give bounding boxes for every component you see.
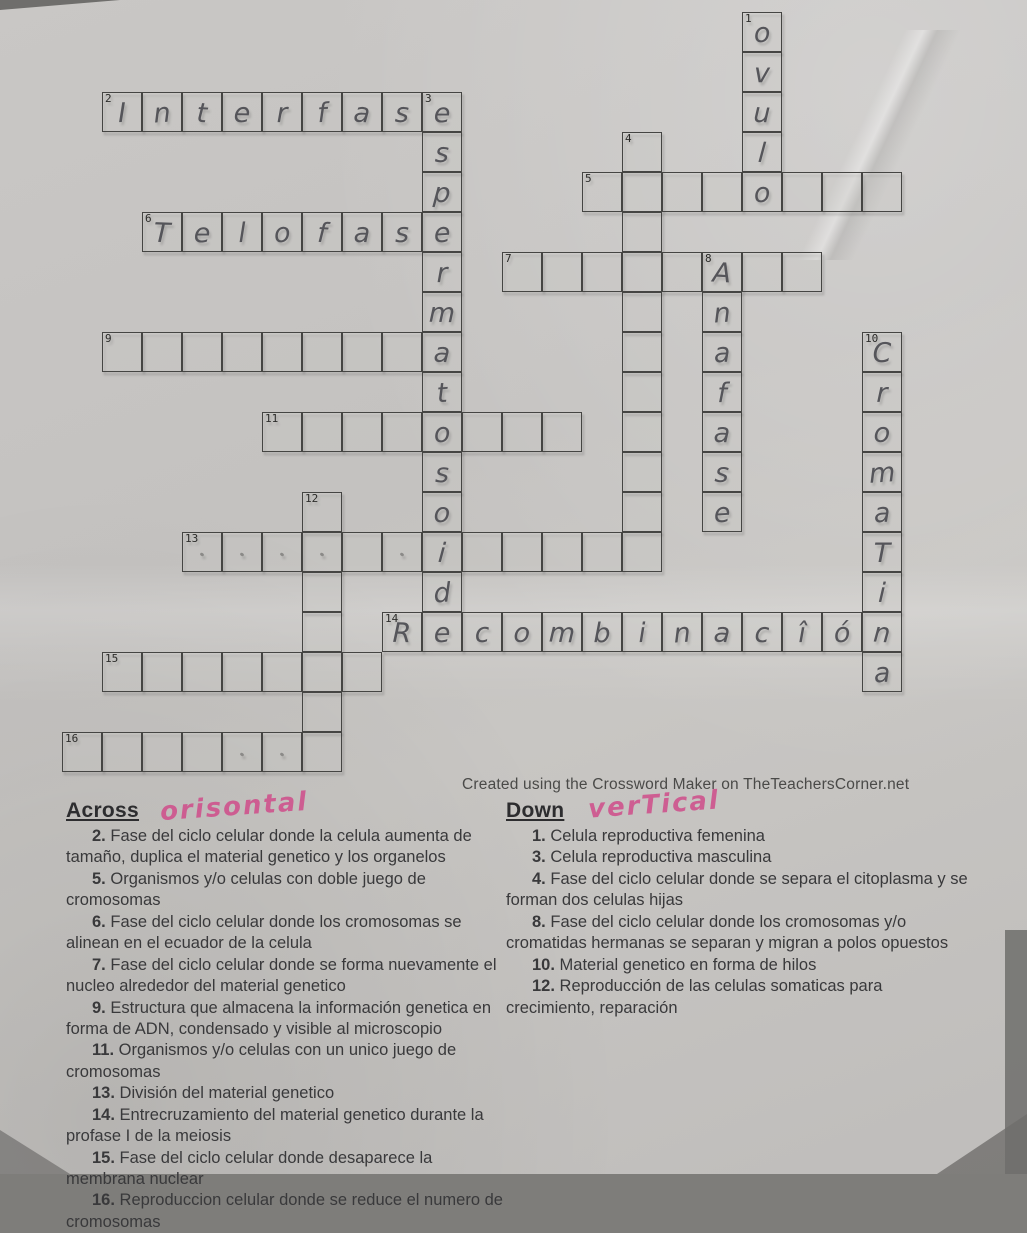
grid-cell: 16 xyxy=(62,732,102,772)
handwritten-letter: o xyxy=(742,12,781,51)
clue-item: 6. Fase del ciclo celular donde los crom… xyxy=(66,912,504,955)
handwritten-letter: t xyxy=(182,92,222,132)
grid-cell xyxy=(582,252,622,292)
grid-cell: n xyxy=(702,292,742,332)
grid-cell: o xyxy=(502,612,542,652)
crossword-grid: 2Interfas3e5o6Telofase78A9a11o13i14Recom… xyxy=(62,12,902,772)
clue-number: 16 xyxy=(65,733,78,745)
grid-cell xyxy=(142,332,182,372)
handwritten-letter: e xyxy=(223,93,262,132)
clue-item: 10. Material genetico en forma de hilos xyxy=(506,955,968,976)
grid-cell: o xyxy=(422,412,462,452)
grid-cell: o xyxy=(742,172,782,212)
handwritten-letter: c xyxy=(743,613,782,652)
grid-cell: r xyxy=(862,372,902,412)
clue-item-number: 5. xyxy=(92,870,110,888)
grid-cell: u xyxy=(742,92,782,132)
handwritten-letter: m xyxy=(862,452,903,493)
grid-cell: a xyxy=(342,92,382,132)
handwritten-letter: n xyxy=(862,612,903,653)
clue-item-number: 16. xyxy=(92,1191,120,1209)
clue-item-number: 1. xyxy=(532,827,550,845)
handwritten-letter: d xyxy=(422,572,462,612)
handwritten-letter: u xyxy=(742,92,781,131)
clue-number: 11 xyxy=(265,413,278,425)
handwritten-letter: a xyxy=(422,332,462,372)
grid-cell xyxy=(302,612,342,652)
grid-cell xyxy=(622,412,662,452)
grid-cell xyxy=(142,732,182,772)
handwritten-letter: i xyxy=(862,572,901,611)
grid-cell xyxy=(782,252,822,292)
grid-cell xyxy=(462,412,502,452)
handwritten-letter: s xyxy=(382,92,421,131)
handwritten-letter: o xyxy=(262,212,303,253)
grid-cell xyxy=(622,292,662,332)
clue-item: 12. Reproducción de las celulas somatica… xyxy=(506,976,968,1019)
grid-cell xyxy=(222,732,262,772)
clue-item-number: 7. xyxy=(92,956,110,974)
clue-item-number: 11. xyxy=(92,1041,119,1059)
grid-cell xyxy=(782,172,822,212)
grid-cell: 12 xyxy=(302,492,342,532)
clue-item-number: 10. xyxy=(532,956,560,974)
handwritten-letter: n xyxy=(142,92,183,133)
grid-cell xyxy=(342,532,382,572)
grid-cell xyxy=(862,172,902,212)
handwritten-letter: e xyxy=(702,492,742,532)
grid-cell xyxy=(382,332,422,372)
grid-cell xyxy=(542,532,582,572)
handwritten-letter: r xyxy=(863,373,902,412)
grid-cell xyxy=(182,332,222,372)
grid-cell xyxy=(342,332,382,372)
handwritten-letter: i xyxy=(422,532,463,573)
grid-cell: a xyxy=(862,492,902,532)
grid-cell: e xyxy=(182,212,222,252)
stray-pencil-mark xyxy=(400,552,405,557)
grid-cell xyxy=(542,252,582,292)
handwritten-letter: m xyxy=(542,612,581,651)
clue-item: 9. Estructura que almacena la informació… xyxy=(66,998,504,1041)
grid-cell xyxy=(302,412,342,452)
clue-item-number: 2. xyxy=(92,827,110,845)
grid-cell: a xyxy=(862,652,902,692)
clue-item-number: 12. xyxy=(532,977,560,995)
down-clue-list: 1. Celula reproductiva femenina3. Celula… xyxy=(506,826,968,1019)
clue-item: 3. Celula reproductiva masculina xyxy=(506,847,968,868)
clue-item: 8. Fase del ciclo celular donde los crom… xyxy=(506,912,968,955)
clue-number: 4 xyxy=(625,133,632,145)
handwritten-letter: T xyxy=(863,533,901,571)
grid-cell: ó xyxy=(822,612,862,652)
clue-item: 13. División del material genetico xyxy=(66,1083,504,1104)
grid-cell: a xyxy=(702,612,742,652)
handwritten-letter: e xyxy=(423,613,462,652)
handwritten-letter: l xyxy=(222,212,261,251)
grid-cell: s xyxy=(422,132,462,172)
clue-item-number: 9. xyxy=(92,999,110,1017)
grid-cell: 11 xyxy=(262,412,302,452)
handwritten-letter: o xyxy=(422,492,461,531)
stray-pencil-mark xyxy=(280,752,285,757)
clue-number: 15 xyxy=(105,653,118,665)
handwritten-letter: î xyxy=(783,613,822,652)
handwritten-letter: a xyxy=(342,92,383,133)
handwritten-letter: i xyxy=(622,612,661,651)
grid-cell xyxy=(182,732,222,772)
grid-cell: t xyxy=(422,372,462,412)
clue-item-number: 3. xyxy=(532,848,550,866)
grid-cell xyxy=(622,452,662,492)
grid-cell xyxy=(382,412,422,452)
grid-cell: s xyxy=(382,212,422,252)
across-clue-list: 2. Fase del ciclo celular donde la celul… xyxy=(66,826,504,1233)
grid-cell: 7 xyxy=(502,252,542,292)
grid-cell xyxy=(742,252,782,292)
grid-cell: i xyxy=(862,572,902,612)
grid-cell: i xyxy=(422,532,462,572)
grid-cell: m xyxy=(422,292,462,332)
grid-cell: 2I xyxy=(102,92,142,132)
grid-cell xyxy=(502,532,542,572)
handwritten-letter: C xyxy=(863,333,902,372)
grid-cell xyxy=(302,332,342,372)
handwritten-letter: f xyxy=(302,92,342,132)
grid-cell xyxy=(542,412,582,452)
stray-pencil-mark xyxy=(240,552,245,557)
handwritten-letter: e xyxy=(422,212,462,252)
grid-cell xyxy=(702,172,742,212)
grid-cell: m xyxy=(862,452,902,492)
handwritten-letter: ó xyxy=(822,612,862,652)
handwritten-letter: e xyxy=(423,93,461,131)
grid-cell xyxy=(622,492,662,532)
grid-cell xyxy=(222,532,262,572)
handwritten-letter: o xyxy=(742,172,782,212)
grid-cell xyxy=(622,532,662,572)
grid-cell xyxy=(622,372,662,412)
grid-cell: i xyxy=(622,612,662,652)
clue-item-number: 13. xyxy=(92,1084,120,1102)
grid-cell: T xyxy=(862,532,902,572)
handwritten-letter: a xyxy=(343,213,382,252)
clue-item: 5. Organismos y/o celulas con doble jueg… xyxy=(66,869,504,912)
clue-number: 12 xyxy=(305,493,318,505)
grid-cell: î xyxy=(782,612,822,652)
clue-number: 5 xyxy=(585,173,592,185)
clue-item: 14. Entrecruzamiento del material geneti… xyxy=(66,1105,504,1148)
grid-cell: m xyxy=(542,612,582,652)
grid-cell: n xyxy=(142,92,182,132)
clue-item-number: 15. xyxy=(92,1149,120,1167)
grid-cell: e xyxy=(222,92,262,132)
handwritten-letter: n xyxy=(662,612,703,653)
grid-cell: c xyxy=(462,612,502,652)
grid-cell xyxy=(302,692,342,732)
grid-cell: e xyxy=(422,212,462,252)
grid-cell xyxy=(302,532,342,572)
grid-cell xyxy=(582,532,622,572)
grid-cell: l xyxy=(742,132,782,172)
grid-cell: 8A xyxy=(702,252,742,292)
clue-item: 7. Fase del ciclo celular donde se forma… xyxy=(66,955,504,998)
grid-cell xyxy=(262,332,302,372)
grid-cell xyxy=(102,732,142,772)
grid-cell xyxy=(262,732,302,772)
grid-cell xyxy=(222,332,262,372)
grid-cell: b xyxy=(582,612,622,652)
grid-cell xyxy=(622,252,662,292)
grid-cell: p xyxy=(422,172,462,212)
handwritten-letter: o xyxy=(422,412,461,451)
handwritten-letter: a xyxy=(702,612,742,652)
clue-item-number: 6. xyxy=(92,913,110,931)
grid-cell: d xyxy=(422,572,462,612)
grid-cell: e xyxy=(702,492,742,532)
handwritten-letter: R xyxy=(383,613,422,652)
clue-item: 11. Organismos y/o celulas con un unico … xyxy=(66,1040,504,1083)
handwritten-letter: r xyxy=(263,93,302,132)
grid-cell xyxy=(302,572,342,612)
grid-cell: n xyxy=(862,612,902,652)
clue-item: 15. Fase del ciclo celular donde desapar… xyxy=(66,1148,504,1191)
grid-cell: f xyxy=(302,92,342,132)
down-heading: Down xyxy=(506,799,564,823)
handwritten-letter: c xyxy=(462,612,502,652)
grid-cell: 5 xyxy=(582,172,622,212)
grid-cell: o xyxy=(862,412,902,452)
clue-item: 2. Fase del ciclo celular donde la celul… xyxy=(66,826,504,869)
handwritten-letter: e xyxy=(183,213,221,251)
stray-pencil-mark xyxy=(280,552,285,557)
grid-cell: a xyxy=(702,412,742,452)
handwritten-letter: a xyxy=(702,412,741,451)
grid-cell xyxy=(182,652,222,692)
across-heading: Across xyxy=(66,799,139,823)
grid-cell: r xyxy=(422,252,462,292)
grid-cell: 13 xyxy=(182,532,222,572)
clue-item: 16. Reproduccion celular donde se reduce… xyxy=(66,1190,504,1233)
grid-cell: 14R xyxy=(382,612,422,652)
grid-cell: e xyxy=(422,612,462,652)
handwritten-letter: t xyxy=(422,372,463,413)
grid-cell xyxy=(822,172,862,212)
handwritten-letter: s xyxy=(422,132,461,171)
grid-cell xyxy=(302,652,342,692)
grid-cell: c xyxy=(742,612,782,652)
handwritten-letter: s xyxy=(383,213,422,252)
grid-cell: a xyxy=(702,332,742,372)
grid-cell xyxy=(662,252,702,292)
grid-cell xyxy=(222,652,262,692)
grid-cell: o xyxy=(422,492,462,532)
handwritten-letter: A xyxy=(702,252,742,292)
clue-item: 1. Celula reproductiva femenina xyxy=(506,826,968,847)
grid-cell: 10C xyxy=(862,332,902,372)
handwritten-letter: b xyxy=(583,613,621,651)
clue-item-number: 4. xyxy=(532,870,550,888)
handwritten-letter: a xyxy=(862,652,902,692)
handwritten-letter: n xyxy=(702,292,743,333)
handwritten-letter: a xyxy=(702,332,741,371)
grid-cell xyxy=(342,652,382,692)
grid-cell: f xyxy=(302,212,342,252)
handwritten-letter: l xyxy=(742,132,783,173)
grid-cell xyxy=(662,172,702,212)
grid-cell: 15 xyxy=(102,652,142,692)
grid-cell xyxy=(622,212,662,252)
grid-cell: s xyxy=(382,92,422,132)
grid-cell: 6T xyxy=(142,212,182,252)
grid-cell: n xyxy=(662,612,702,652)
grid-cell xyxy=(622,332,662,372)
handwritten-letter: f xyxy=(302,212,342,252)
handwritten-letter: s xyxy=(702,452,743,493)
clue-item: 4. Fase del ciclo celular donde se separ… xyxy=(506,869,968,912)
handwritten-letter: T xyxy=(142,212,181,251)
handwritten-letter: o xyxy=(862,412,902,452)
handwritten-letter: f xyxy=(703,373,741,411)
grid-cell: s xyxy=(422,452,462,492)
grid-cell: f xyxy=(702,372,742,412)
handwritten-letter: a xyxy=(862,492,901,531)
grid-cell xyxy=(302,732,342,772)
grid-cell xyxy=(142,652,182,692)
grid-cell xyxy=(382,532,422,572)
grid-cell xyxy=(262,532,302,572)
grid-cell: s xyxy=(702,452,742,492)
stray-pencil-mark xyxy=(240,752,245,757)
handwritten-letter: v xyxy=(743,53,781,91)
handwritten-letter: I xyxy=(102,92,141,131)
grid-cell: t xyxy=(182,92,222,132)
grid-cell: 3e xyxy=(422,92,462,132)
grid-cell: a xyxy=(422,332,462,372)
stray-pencil-mark xyxy=(320,552,325,557)
handwritten-letter: s xyxy=(423,453,461,491)
clue-item-number: 14. xyxy=(92,1106,120,1124)
grid-cell: a xyxy=(342,212,382,252)
grid-cell: 1o xyxy=(742,12,782,52)
clue-number: 7 xyxy=(505,253,512,265)
grid-cell: l xyxy=(222,212,262,252)
grid-cell xyxy=(622,172,662,212)
handwritten-letter: o xyxy=(502,612,543,653)
grid-cell: o xyxy=(262,212,302,252)
handwritten-letter: r xyxy=(423,253,462,292)
clue-item-number: 8. xyxy=(532,913,550,931)
grid-cell: 4 xyxy=(622,132,662,172)
clue-number: 13 xyxy=(185,533,198,545)
grid-cell: r xyxy=(262,92,302,132)
grid-cell: v xyxy=(742,52,782,92)
handwritten-letter: p xyxy=(422,172,463,213)
clue-number: 9 xyxy=(105,333,112,345)
grid-cell xyxy=(462,532,502,572)
stray-pencil-mark xyxy=(200,552,205,557)
grid-cell xyxy=(262,652,302,692)
grid-cell xyxy=(502,412,542,452)
grid-cell xyxy=(342,412,382,452)
handwritten-letter: m xyxy=(423,293,462,332)
grid-cell: 9 xyxy=(102,332,142,372)
